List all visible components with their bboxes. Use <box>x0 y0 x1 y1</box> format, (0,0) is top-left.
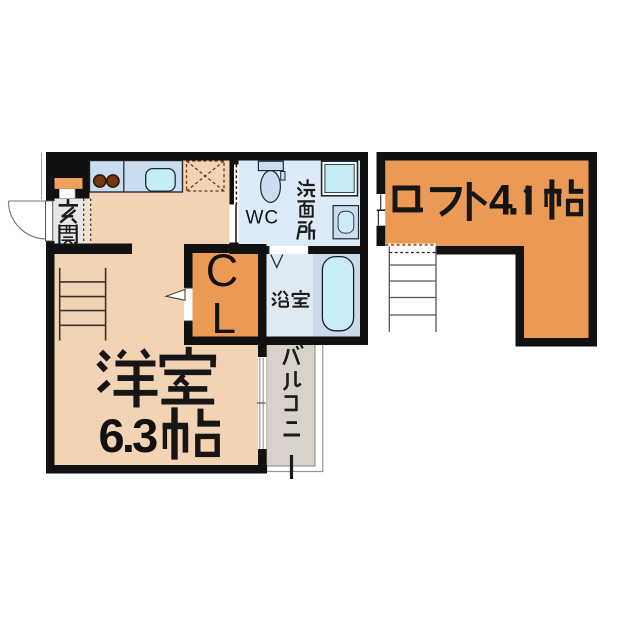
svg-text:L: L <box>212 294 236 343</box>
svg-text:WC: WC <box>246 208 279 229</box>
svg-text:C: C <box>206 245 239 296</box>
svg-text:6.3: 6.3 <box>99 409 158 462</box>
svg-text:.: . <box>508 178 520 225</box>
